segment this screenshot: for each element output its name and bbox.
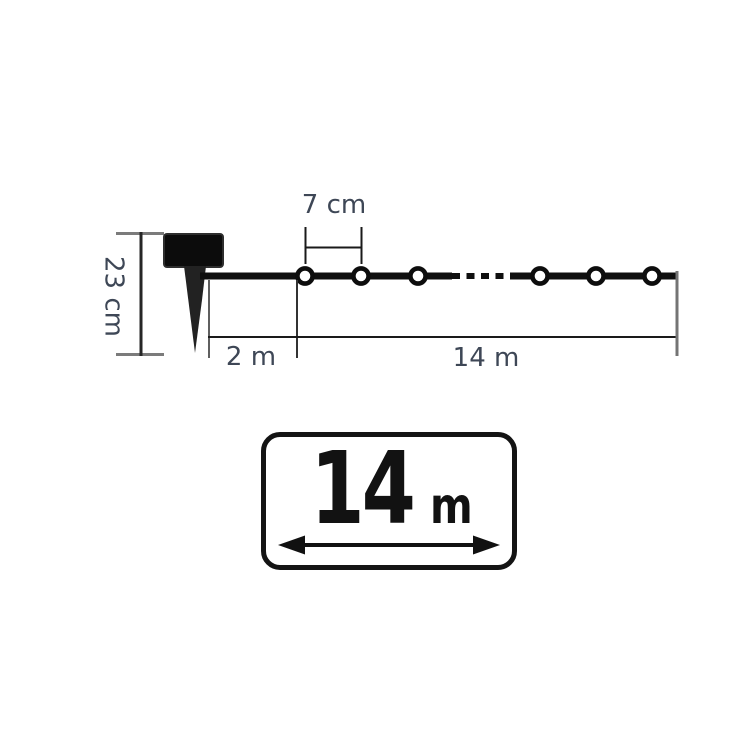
light-bulb-icon xyxy=(644,268,659,283)
light-bulb-icon xyxy=(588,268,603,283)
string-length-label: 14 m xyxy=(440,345,532,371)
bulb-spacing-label: 7 cm xyxy=(294,192,374,218)
light-bulb-icon xyxy=(410,268,425,283)
light-bulb-icon xyxy=(532,268,547,283)
badge-length-value: 14 xyxy=(311,437,413,541)
badge-number-row: 14 m xyxy=(266,437,512,537)
stake-height-label: 23 cm xyxy=(100,251,127,343)
light-bulb-icon xyxy=(297,268,312,283)
lead-length-label: 2 m xyxy=(213,344,289,370)
solar-panel-icon xyxy=(164,234,223,267)
double-arrow-icon xyxy=(278,532,500,558)
diagram-canvas: 23 cm 7 cm 2 m 14 m 14 m xyxy=(0,0,734,734)
light-bulb-icon xyxy=(353,268,368,283)
length-badge: 14 m xyxy=(261,432,517,570)
string-light-diagram xyxy=(0,0,734,734)
badge-length-unit: m xyxy=(430,481,473,531)
